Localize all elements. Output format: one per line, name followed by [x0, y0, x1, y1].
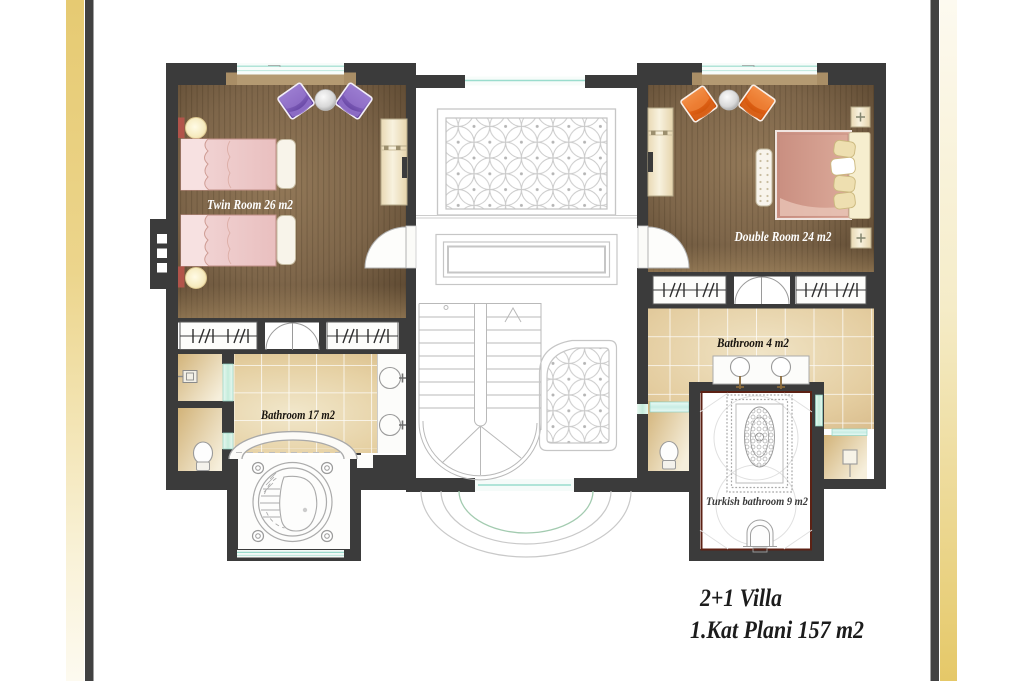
svg-text:Bathroom 4 m2: Bathroom 4 m2: [716, 336, 789, 350]
svg-text:Bathroom 17 m2: Bathroom 17 m2: [260, 408, 335, 422]
svg-text:Twin Room 26 m2: Twin Room 26 m2: [207, 197, 293, 212]
svg-text:Double Room 24 m2: Double Room 24 m2: [734, 229, 832, 244]
svg-text:Turkish bathroom 9 m2: Turkish bathroom 9 m2: [706, 496, 808, 508]
svg-text:2+1 Villa: 2+1 Villa: [699, 585, 782, 612]
svg-text:1.Kat Plani 157 m2: 1.Kat Plani 157 m2: [690, 617, 864, 644]
